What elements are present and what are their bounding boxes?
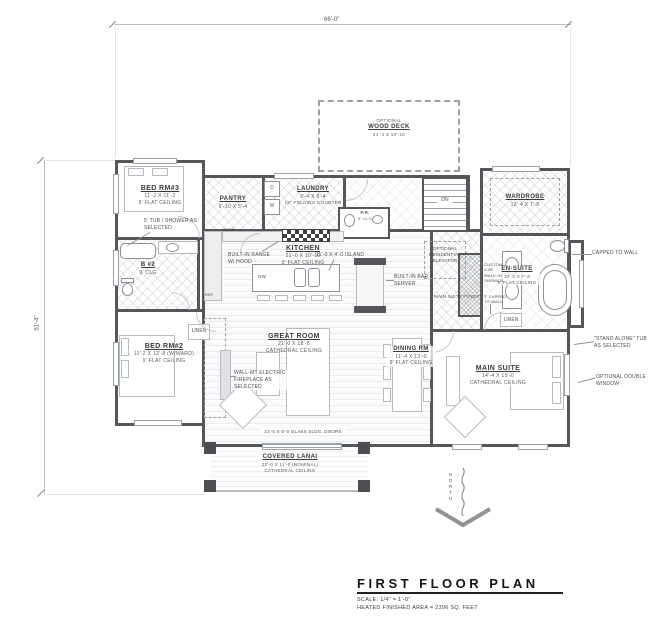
bath2-name: B #2 xyxy=(126,262,170,270)
window xyxy=(274,173,314,179)
leader-line xyxy=(230,376,236,377)
window xyxy=(113,174,119,214)
leader-line xyxy=(490,304,491,314)
walkin-shower-annotation: CUSTOM 4'X6' WALK-IN SHOWER xyxy=(484,262,508,284)
island-sink xyxy=(294,268,306,287)
dishwasher-label: DW xyxy=(258,274,272,280)
bath2-tub xyxy=(120,243,156,259)
window xyxy=(134,420,182,426)
optional-double-window-glass xyxy=(579,260,584,308)
tub-shower-annotation: 5' TUB / SHOWER AS SELECTED xyxy=(144,218,200,232)
lanai-post xyxy=(358,442,370,454)
stairs-down-label: DN xyxy=(437,198,453,203)
pantry-dim: 6'-10 X 5'-4 xyxy=(210,204,256,211)
staircase xyxy=(422,177,468,232)
bar-wall-cap xyxy=(354,258,386,265)
bed3-name: BED RM#3 xyxy=(125,184,195,193)
window xyxy=(518,444,548,450)
laundry-label: LAUNDRY 9'-4 X 8'-4 18" FOLDING COUNTER xyxy=(282,186,344,206)
standalone-tub-annotation: "STAND ALONE" TUB AS SELECTED xyxy=(594,336,652,350)
island-annotation: 11'-0 X 4'-0 ISLAND xyxy=(316,252,378,259)
bar-annotation: BUILT-IN BAR / SERVER xyxy=(394,274,436,288)
pantry-label: PANTRY 6'-10 X 5'-4 xyxy=(210,196,256,210)
bar-wall-cap xyxy=(354,306,386,313)
great-room-name: GREAT ROOM xyxy=(248,332,340,341)
main-suite-name: MAIN SUITE xyxy=(466,364,530,373)
left-dimension-label: 51'-4" xyxy=(35,313,41,332)
lanai-name: COVERED LANAI xyxy=(244,454,336,462)
linen-label: LINEN xyxy=(500,318,522,323)
fridge-label: REF. xyxy=(205,292,223,297)
island-sink xyxy=(308,268,320,287)
main-suite-pillow xyxy=(552,356,561,378)
leader-line xyxy=(572,254,592,255)
laundry-name: LAUNDRY xyxy=(282,186,344,194)
kitchen-ceiling: 9' FLAT CEILING xyxy=(270,260,336,267)
north-label: NORTH xyxy=(448,472,453,502)
dimension-tick xyxy=(37,157,44,164)
window xyxy=(492,166,540,172)
wardrobe-label: WARDROBE 12'-4 X 7'-8 xyxy=(496,194,554,208)
wood-deck-name: WOOD DECK xyxy=(338,124,440,132)
sheet-area: HEATED FINISHED AREA = 2396 SQ. FEET xyxy=(357,605,478,611)
extension-line xyxy=(115,28,116,158)
main-suite-foyer-annotation: MAIN SUITE FOYER xyxy=(434,294,480,300)
lanai-post xyxy=(204,480,216,492)
window xyxy=(133,158,177,164)
pantry-name: PANTRY xyxy=(210,196,256,204)
bath2-label: B #2 9' CLG xyxy=(126,262,170,276)
wood-deck-label: OPTIONAL WOOD DECK 21'-4 X 10'-10 xyxy=(338,118,440,137)
sheet-scale: SCALE: 1/4" = 1'-0" xyxy=(357,597,411,603)
kitchen-tall-cabinets xyxy=(204,231,222,301)
left-dimension-line xyxy=(44,160,45,494)
bed2-name: BED RM#2 xyxy=(128,342,200,351)
main-suite-ceiling: CATHEDRAL CEILING xyxy=(466,380,530,387)
washer-label: W xyxy=(264,204,280,209)
bed2-dim: 11'-2 X 12'-8 (W/WARD) xyxy=(128,351,200,358)
dining-chair xyxy=(383,388,391,402)
lanai-label: COVERED LANAI 22'-0 X 11'-0 (NOMINAL) CA… xyxy=(244,454,336,473)
kitchen-range xyxy=(282,229,330,242)
island-stool xyxy=(257,295,270,301)
dining-chair xyxy=(383,366,391,380)
dining-chair xyxy=(423,366,431,380)
bed2-label: BED RM#2 11'-2 X 12'-8 (W/WARD) 9' FLAT … xyxy=(128,342,200,364)
dimension-tick xyxy=(37,490,44,497)
dining-label: DINING RM 11'-4 X 13'-0 9' FLAT CEILING xyxy=(386,346,436,367)
window xyxy=(452,444,482,450)
island-stool xyxy=(311,295,324,301)
bath2-toilet xyxy=(122,283,133,296)
north-arrow-chevron xyxy=(434,506,492,530)
island-stool xyxy=(293,295,306,301)
capped-wall-annotation: CAPPED TO WALL xyxy=(592,250,646,257)
lanai-post xyxy=(358,480,370,492)
extension-line xyxy=(570,28,571,166)
wardrobe-dim: 12'-4 X 7'-8 xyxy=(496,202,554,209)
extension-line xyxy=(46,494,206,495)
bar-server-cabinet xyxy=(356,262,384,308)
powder-label: P.R. 9' CLG xyxy=(352,210,378,221)
sheet-title: FIRST FLOOR PLAN xyxy=(357,576,539,591)
double-window-annotation: OPTIONAL DOUBLE WINDOW xyxy=(596,374,650,388)
dining-chair xyxy=(423,388,431,402)
sliding-doors-annotation: 21'-0 X 8'-0 GLASS SLDG. DOORS xyxy=(260,429,346,435)
island-stool xyxy=(329,295,342,301)
top-dimension-line xyxy=(115,24,571,25)
leader-line xyxy=(386,280,394,281)
great-room-ceiling: CATHEDRAL CEILING xyxy=(248,348,340,355)
bed2-ceiling: 9' FLAT CEILING xyxy=(128,358,200,365)
ensuite-toilet xyxy=(550,240,565,252)
great-room-label: GREAT ROOM 21'-0 X 18'-8 CATHEDRAL CEILI… xyxy=(248,332,340,354)
title-underline xyxy=(357,592,563,594)
bath2-ceiling: 9' CLG xyxy=(126,270,170,277)
island-stool xyxy=(275,295,288,301)
dining-name: DINING RM xyxy=(386,346,436,354)
main-suite-pillow xyxy=(552,382,561,404)
extension-line xyxy=(46,160,114,161)
leader-line xyxy=(578,377,596,383)
lanai-post xyxy=(204,442,216,454)
capped-shower-annotation: 7' CAPPED TO WALL xyxy=(484,294,510,305)
fireplace-annotation: WALL-MT ELECTRIC FIREPLACE AS SELECTED xyxy=(234,370,296,390)
bed3-pillow xyxy=(128,168,144,176)
range-annotation: BUILT-IN RANGE W/ HOOD xyxy=(228,252,274,266)
window xyxy=(113,250,119,286)
lanai-ceiling: CATHEDRAL CEILING xyxy=(244,468,336,474)
top-dimension-label: 66'-0" xyxy=(322,17,341,23)
elevator-annotation: OPTIONAL RESIDENTIAL ELEVATOR xyxy=(426,246,464,264)
lanai-edge xyxy=(204,490,370,492)
powder-ceiling: 9' CLG xyxy=(352,216,378,221)
dining-ceiling: 9' FLAT CEILING xyxy=(386,360,436,367)
wardrobe-name: WARDROBE xyxy=(496,194,554,202)
bed3-label: BED RM#3 11'-2 X 11'-2 9' FLAT CEILING xyxy=(125,184,195,206)
leader-line xyxy=(574,341,594,345)
bed3-pillow xyxy=(152,168,168,176)
floor-plan-sheet: 66'-0" 51'-4" OPTIONAL WOOD DECK 21'-4 X… xyxy=(0,0,672,635)
bed3-ceiling: 9' FLAT CEILING xyxy=(125,200,195,207)
sliding-glass-door xyxy=(262,443,342,450)
ensuite-toilet-tank xyxy=(564,239,569,253)
bath2-sink xyxy=(166,243,179,252)
laundry-note: 18" FOLDING COUNTER xyxy=(282,200,344,206)
main-suite-label: MAIN SUITE 14'-4 X 15'-0 CATHEDRAL CEILI… xyxy=(466,364,530,386)
wood-deck-dim: 21'-4 X 10'-10 xyxy=(338,132,440,138)
electric-fireplace xyxy=(220,350,231,400)
dresser xyxy=(446,356,460,406)
dryer-label: D xyxy=(264,186,280,191)
standalone-tub-inner xyxy=(543,270,567,310)
window xyxy=(564,354,570,396)
